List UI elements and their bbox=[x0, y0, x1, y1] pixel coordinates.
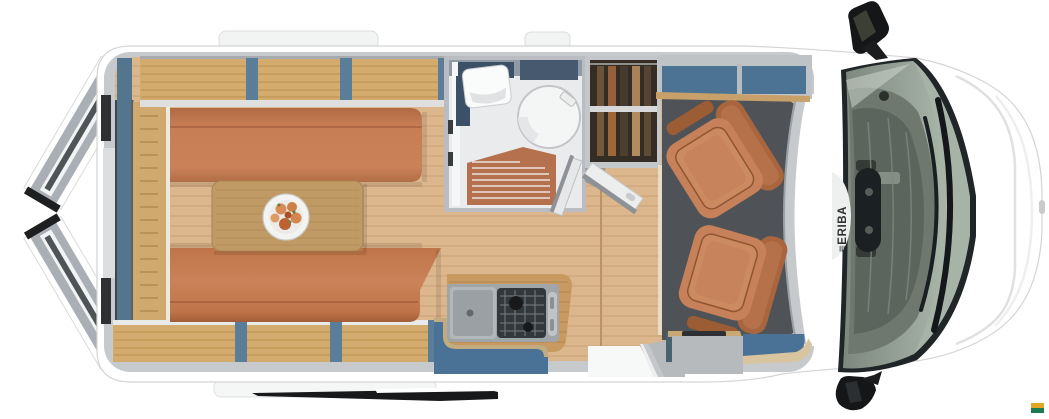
svg-text:≡ERIBA: ≡ERIBA bbox=[837, 206, 849, 252]
